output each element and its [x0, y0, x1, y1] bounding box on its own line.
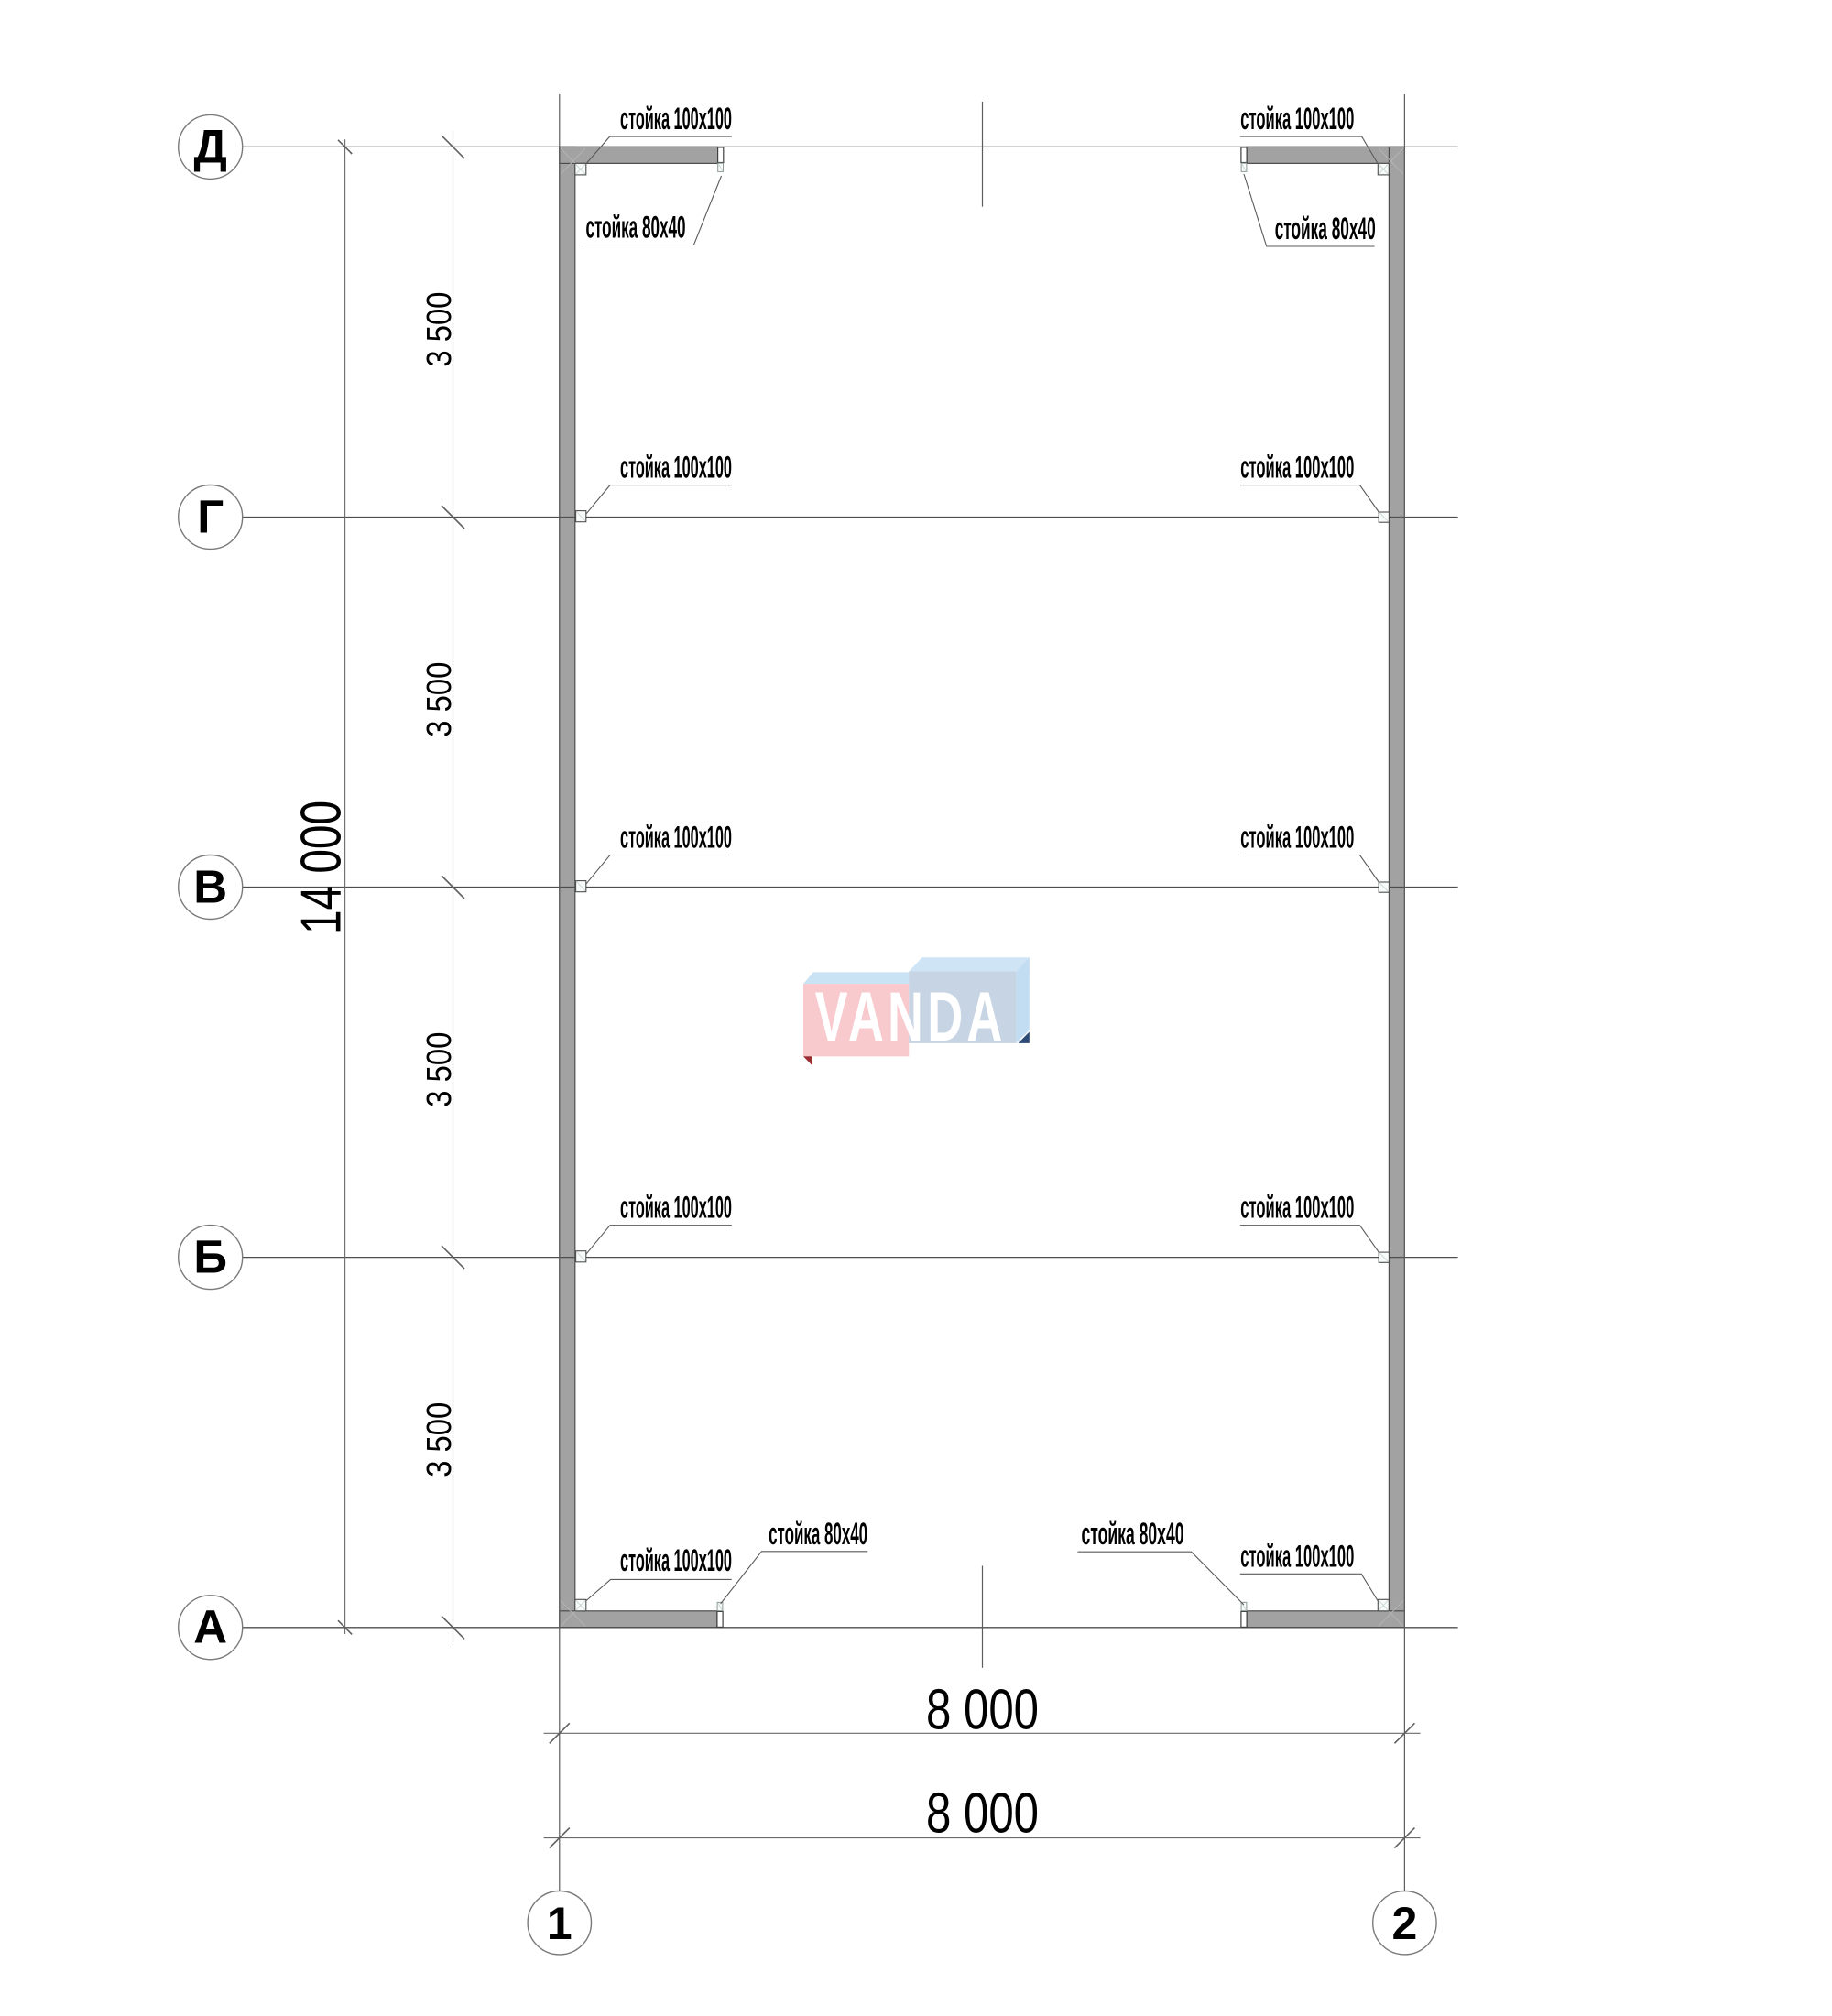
svg-text:8 000: 8 000	[926, 1678, 1039, 1741]
svg-text:14 000: 14 000	[290, 801, 354, 934]
svg-text:стойка 100х100: стойка 100х100	[1240, 821, 1354, 855]
svg-text:1: 1	[547, 1898, 572, 1949]
svg-text:стойка 100х100: стойка 100х100	[620, 102, 732, 136]
svg-text:А: А	[193, 1601, 227, 1653]
svg-text:стойка 80х40: стойка 80х40	[1275, 212, 1376, 246]
svg-text:Г: Г	[197, 490, 224, 542]
svg-text:стойка 100х100: стойка 100х100	[1240, 102, 1354, 136]
svg-text:стойка 80х40: стойка 80х40	[586, 211, 686, 245]
svg-text:3 500: 3 500	[420, 1032, 459, 1107]
svg-text:3 500: 3 500	[420, 292, 459, 367]
svg-text:8 000: 8 000	[926, 1782, 1039, 1845]
svg-text:В: В	[193, 860, 227, 912]
svg-text:стойка 100х100: стойка 100х100	[1240, 1539, 1354, 1574]
svg-text:VANDA: VANDA	[815, 978, 1007, 1056]
svg-text:стойка 100х100: стойка 100х100	[1240, 1191, 1354, 1226]
svg-text:стойка 100х100: стойка 100х100	[620, 451, 732, 485]
svg-text:Д: Д	[194, 120, 227, 172]
svg-text:стойка 80х40: стойка 80х40	[769, 1517, 867, 1552]
svg-text:2: 2	[1391, 1898, 1417, 1949]
svg-text:Б: Б	[193, 1231, 227, 1283]
svg-text:стойка 100х100: стойка 100х100	[620, 1543, 732, 1578]
svg-text:3 500: 3 500	[420, 662, 459, 737]
svg-text:стойка 100х100: стойка 100х100	[1240, 451, 1354, 485]
svg-text:стойка 100х100: стойка 100х100	[620, 821, 732, 855]
svg-text:3 500: 3 500	[420, 1402, 459, 1477]
svg-text:стойка 100х100: стойка 100х100	[620, 1191, 732, 1226]
svg-text:стойка 80х40: стойка 80х40	[1082, 1517, 1184, 1552]
